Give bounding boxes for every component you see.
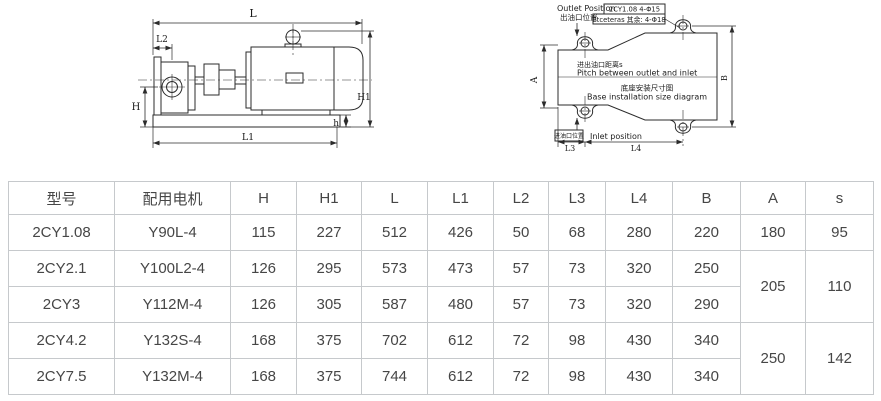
dimension-L2: L2	[153, 35, 172, 60]
table-cell: 95	[806, 215, 874, 251]
table-cell: 180	[741, 215, 806, 251]
table-cell: 126	[231, 251, 297, 287]
dim-label-L3: L3	[565, 144, 575, 153]
table-cell: Y132M-4	[115, 359, 231, 395]
table-cell: 50	[494, 215, 549, 251]
table-cell: 430	[606, 323, 673, 359]
table-cell: 426	[428, 215, 494, 251]
dim-label-L1: L1	[242, 132, 254, 143]
table-cell: Y90L-4	[115, 215, 231, 251]
motor-nameplate	[286, 73, 303, 83]
table-cell: 168	[231, 359, 297, 395]
table-cell: 250	[741, 323, 806, 395]
column-header: H	[231, 182, 297, 215]
table-cell: 305	[297, 287, 362, 323]
column-header: 配用电机	[115, 182, 231, 215]
dimension-h: h	[333, 115, 351, 129]
column-header: L4	[606, 182, 673, 215]
table-row: 2CY1.08Y90L-4115227512426506828022018095	[9, 215, 874, 251]
dim-label-H: H	[132, 102, 141, 113]
table-cell: 205	[741, 251, 806, 323]
table-cell: 220	[673, 215, 741, 251]
table-cell: Y112M-4	[115, 287, 231, 323]
table-row: 2CY2.1Y100L2-412629557347357733202502051…	[9, 251, 874, 287]
table-cell: 250	[673, 251, 741, 287]
base-installation-drawing: Outlet Position 出油口位置 2CY1.08 4-Φ15 Etce…	[440, 0, 881, 179]
hole-note-line2: Etceteras 其余: 4-Φ18	[592, 15, 665, 24]
table-cell: 744	[362, 359, 428, 395]
pump-motor-outline	[138, 24, 372, 127]
table-cell: 57	[494, 251, 549, 287]
drawings-section: L L2 H H1 h	[0, 0, 881, 179]
table-cell: 57	[494, 287, 549, 323]
outlet-position-en: Outlet Position	[557, 4, 615, 13]
table-cell: 587	[362, 287, 428, 323]
dim-label-L4: L4	[631, 144, 641, 153]
pitch-annotation: 进出油口距离s Pitch between outlet and inlet	[577, 60, 697, 78]
table-cell: 142	[806, 323, 874, 395]
mounting-lugs	[572, 15, 696, 146]
table-cell: 480	[428, 287, 494, 323]
table-cell: 115	[231, 215, 297, 251]
table-cell: 2CY1.08	[9, 215, 115, 251]
table-cell: 73	[549, 251, 606, 287]
table-cell: 320	[606, 287, 673, 323]
table-cell: 573	[362, 251, 428, 287]
pitch-label-en: Pitch between outlet and inlet	[577, 69, 697, 78]
column-header: L3	[549, 182, 606, 215]
lifting-eyebolt	[285, 24, 301, 55]
inlet-position-zh: 进油口位置	[554, 132, 584, 140]
inlet-position-en: Inlet position	[590, 132, 642, 141]
table-cell: 73	[549, 287, 606, 323]
dim-label-B: B	[720, 75, 729, 81]
dimension-L1: L1	[153, 127, 337, 148]
base-title-en: Base installation size diagram	[587, 93, 707, 102]
table-cell: 320	[606, 251, 673, 287]
dim-label-H1: H1	[357, 93, 371, 103]
table-cell: 126	[231, 287, 297, 323]
table-row: 2CY4.2Y132S-4168375702612729843034025014…	[9, 323, 874, 359]
table-cell: 2CY7.5	[9, 359, 115, 395]
table-cell: 430	[606, 359, 673, 395]
dimension-A: A	[530, 45, 558, 108]
hole-note-line1: 2CY1.08 4-Φ15	[609, 6, 660, 14]
column-header: H1	[297, 182, 362, 215]
table-cell: 168	[231, 323, 297, 359]
column-header: A	[741, 182, 806, 215]
page: L L2 H H1 h	[0, 0, 881, 401]
column-header: L	[362, 182, 428, 215]
table-cell: 375	[297, 359, 362, 395]
table-cell: 375	[297, 323, 362, 359]
table-cell: 110	[806, 251, 874, 323]
table-cell: 340	[673, 323, 741, 359]
table-cell: 68	[549, 215, 606, 251]
table-cell: 2CY4.2	[9, 323, 115, 359]
table-cell: 98	[549, 359, 606, 395]
column-header: L2	[494, 182, 549, 215]
table-cell: 702	[362, 323, 428, 359]
table-cell: 295	[297, 251, 362, 287]
table-cell: Y132S-4	[115, 323, 231, 359]
base-title-zh: 底座安装尺寸图	[621, 83, 674, 93]
table-cell: 98	[549, 323, 606, 359]
table-cell: 227	[297, 215, 362, 251]
dimension-table: 型号配用电机HH1LL1L2L3L4BAs 2CY1.08Y90L-411522…	[8, 181, 874, 395]
dim-label-A: A	[530, 76, 540, 84]
table-cell: 72	[494, 323, 549, 359]
base-plate	[153, 115, 340, 127]
table-cell: 2CY2.1	[9, 251, 115, 287]
table-cell: 2CY3	[9, 287, 115, 323]
dimension-B: B	[692, 26, 736, 127]
table-cell: 72	[494, 359, 549, 395]
table-cell: 473	[428, 251, 494, 287]
inlet-position-callout: 进油口位置 Inlet position	[554, 118, 642, 141]
table-head-row: 型号配用电机HH1LL1L2L3L4BAs	[9, 182, 874, 215]
table-cell: 512	[362, 215, 428, 251]
column-header: L1	[428, 182, 494, 215]
column-header: B	[673, 182, 741, 215]
column-header: 型号	[9, 182, 115, 215]
dim-label-L: L	[249, 7, 257, 20]
dim-label-L2: L2	[156, 35, 168, 45]
pump-side-view-drawing: L L2 H H1 h	[0, 0, 440, 179]
table-cell: Y100L2-4	[115, 251, 231, 287]
table-cell: 280	[606, 215, 673, 251]
column-header: s	[806, 182, 874, 215]
table-cell: 340	[673, 359, 741, 395]
table-cell: 612	[428, 323, 494, 359]
table-cell: 290	[673, 287, 741, 323]
table-body: 2CY1.08Y90L-4115227512426506828022018095…	[9, 215, 874, 395]
table-cell: 612	[428, 359, 494, 395]
dim-label-h: h	[333, 119, 339, 129]
base-diagram-title: 底座安装尺寸图 Base installation size diagram	[587, 83, 707, 102]
